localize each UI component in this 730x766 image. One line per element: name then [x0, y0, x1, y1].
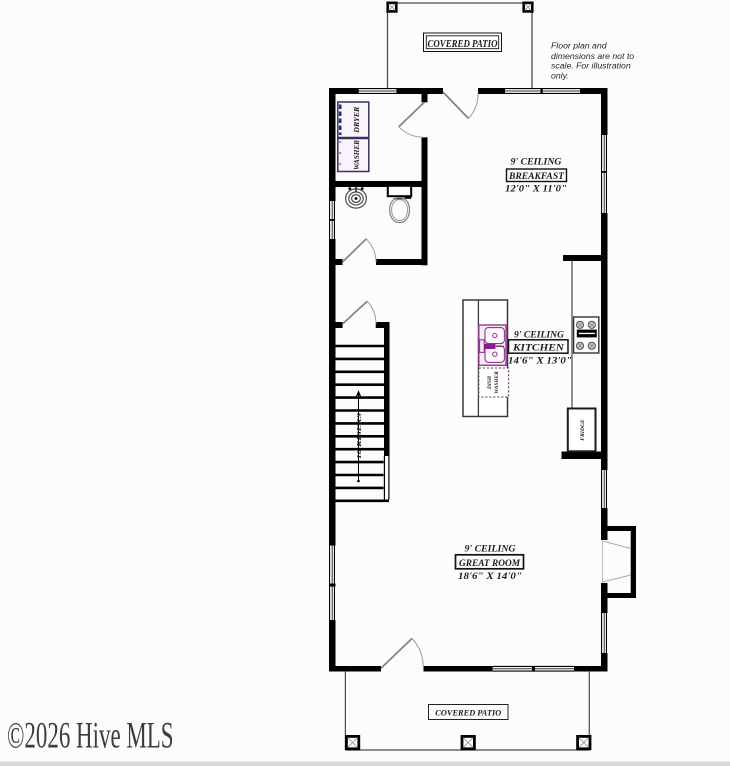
svg-text:dimensions are not to: dimensions are not to: [551, 51, 634, 61]
svg-text:WASHER: WASHER: [353, 140, 361, 170]
svg-text:9' CEILING: 9' CEILING: [465, 544, 517, 554]
svg-text:scale. For illustration: scale. For illustration: [551, 61, 631, 71]
svg-text:DRYER: DRYER: [353, 106, 361, 133]
svg-text:COVERED PATIO: COVERED PATIO: [428, 39, 498, 50]
svg-text:BREAKFAST: BREAKFAST: [508, 171, 565, 182]
svg-text:Floor plan and: Floor plan and: [551, 41, 608, 51]
svg-text:DISH: DISH: [487, 375, 493, 390]
svg-text:18 RISERS: 18 RISERS: [356, 412, 363, 459]
svg-text:WASHER: WASHER: [494, 371, 500, 394]
svg-text:only.: only.: [551, 70, 569, 80]
svg-text:9' CEILING: 9' CEILING: [511, 157, 563, 167]
svg-text:9' CEILING: 9' CEILING: [514, 330, 565, 340]
svg-text:18'6" X 14'0": 18'6" X 14'0": [458, 571, 522, 581]
svg-text:12'0" X 11'0": 12'0" X 11'0": [505, 183, 567, 193]
svg-text:COVERED PATIO: COVERED PATIO: [435, 708, 502, 718]
svg-text:FRIDGE: FRIDGE: [580, 419, 586, 441]
svg-text:KITCHEN: KITCHEN: [512, 342, 565, 353]
svg-text:©2026 Hive MLS: ©2026 Hive MLS: [7, 715, 174, 756]
svg-text:14'6" X 13'0": 14'6" X 13'0": [508, 356, 572, 366]
svg-text:GREAT ROOM: GREAT ROOM: [459, 558, 520, 569]
